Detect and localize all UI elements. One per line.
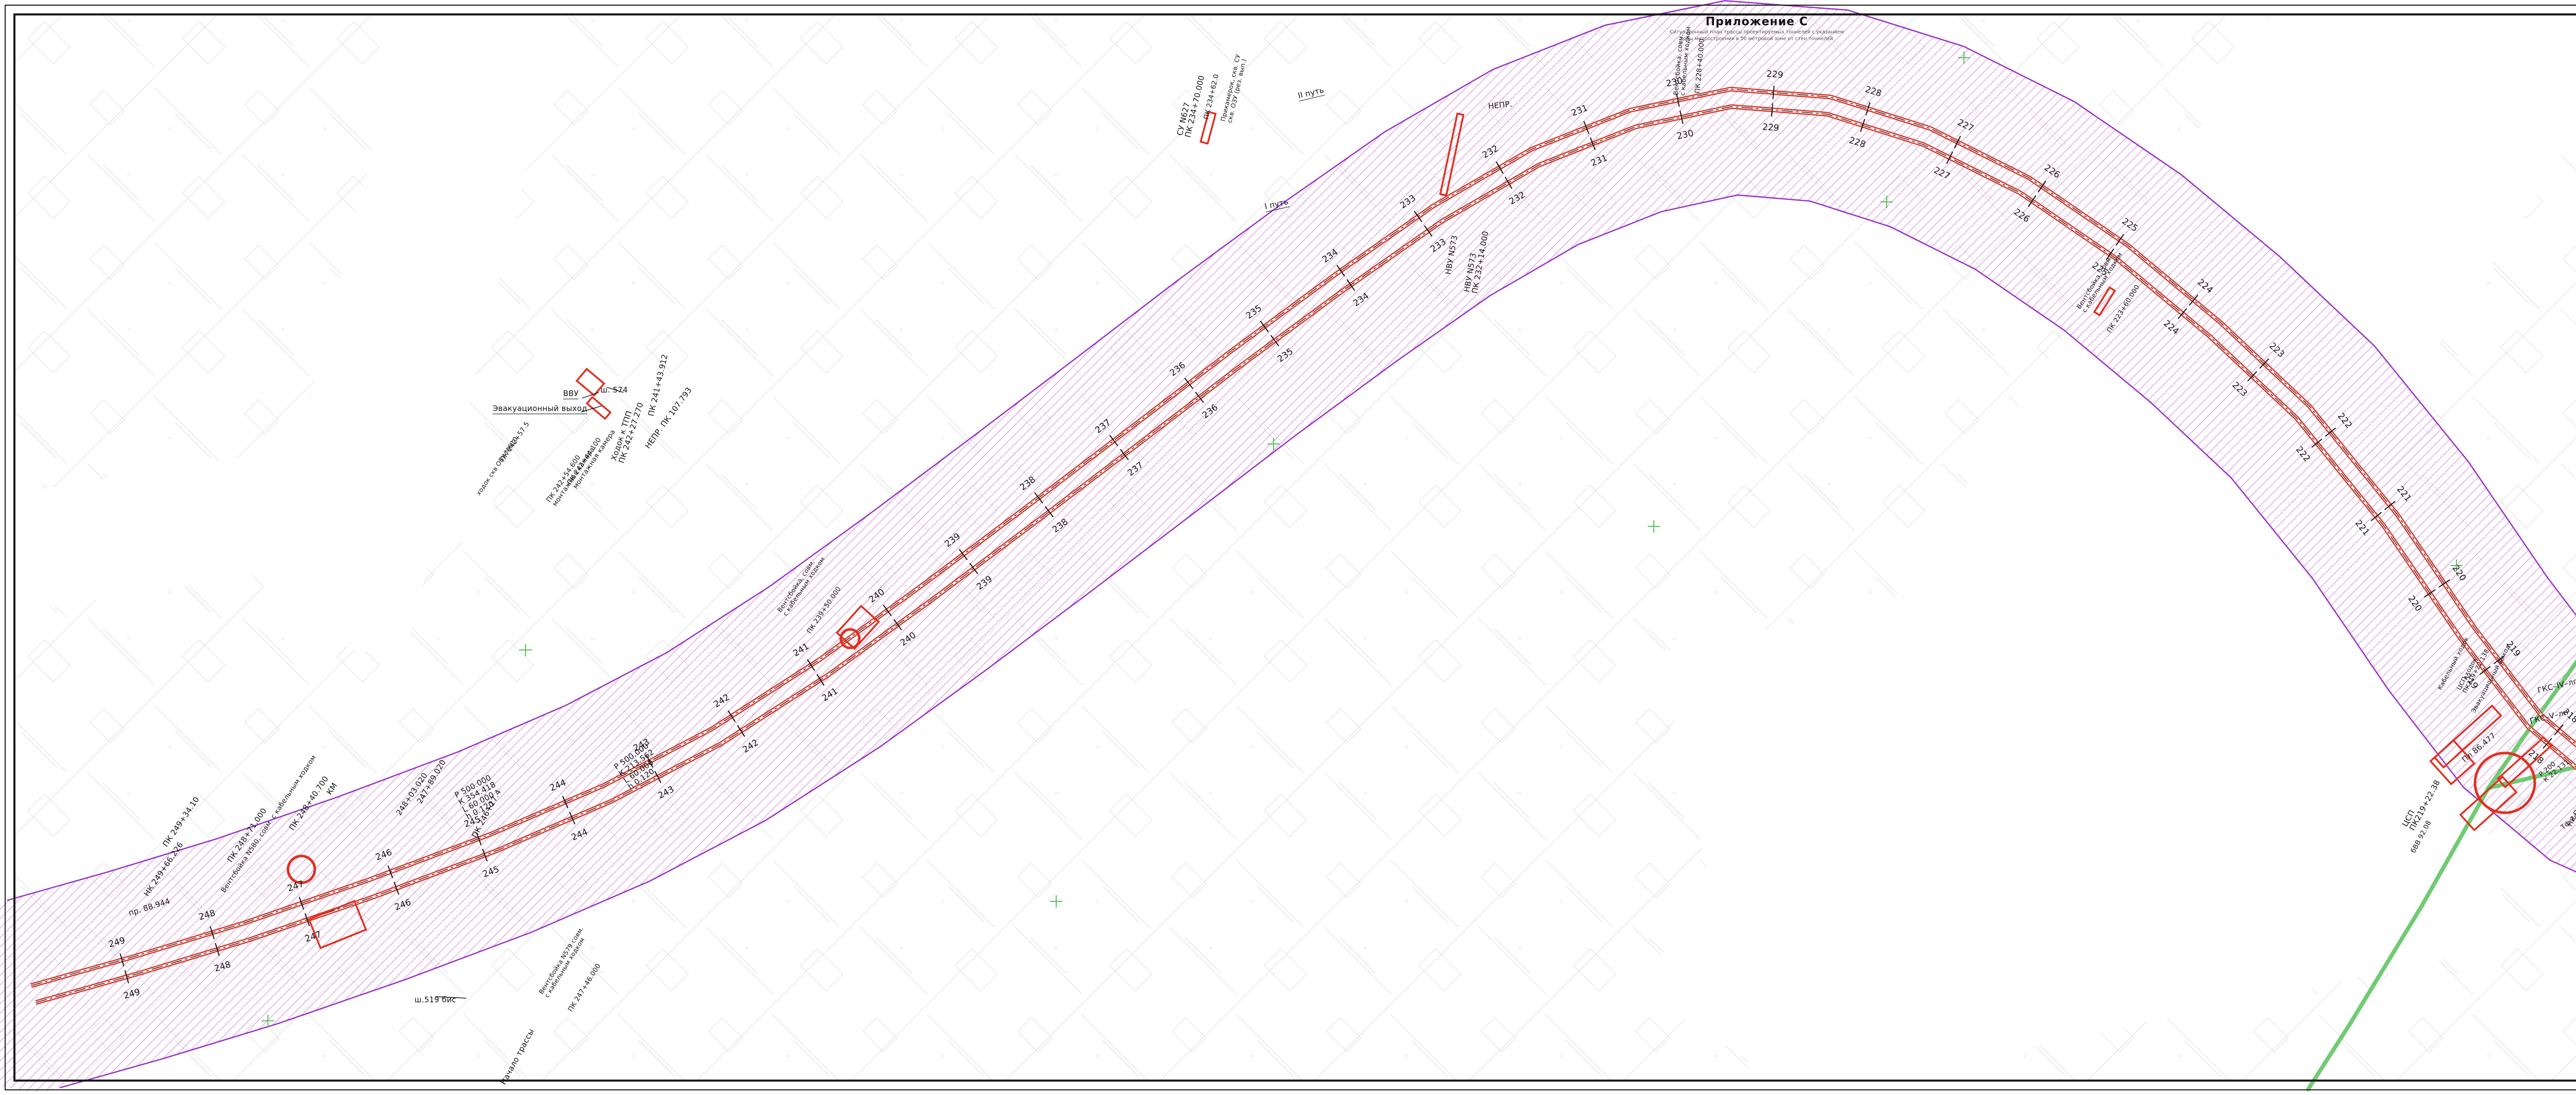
sheet-frame-inner [13,13,2576,1082]
title-subtitle-2: зоны метростроения в 50 метровой зоне от… [1577,36,1937,42]
drawing-sheet: Приложение С Ситуационный план трассы пр… [0,0,2576,1095]
page-title: Приложение С [1577,15,1937,28]
title-subtitle-1: Ситуационный план трассы проектируемых т… [1577,29,1937,35]
title-block: Приложение С Ситуационный план трассы пр… [1577,15,1937,42]
